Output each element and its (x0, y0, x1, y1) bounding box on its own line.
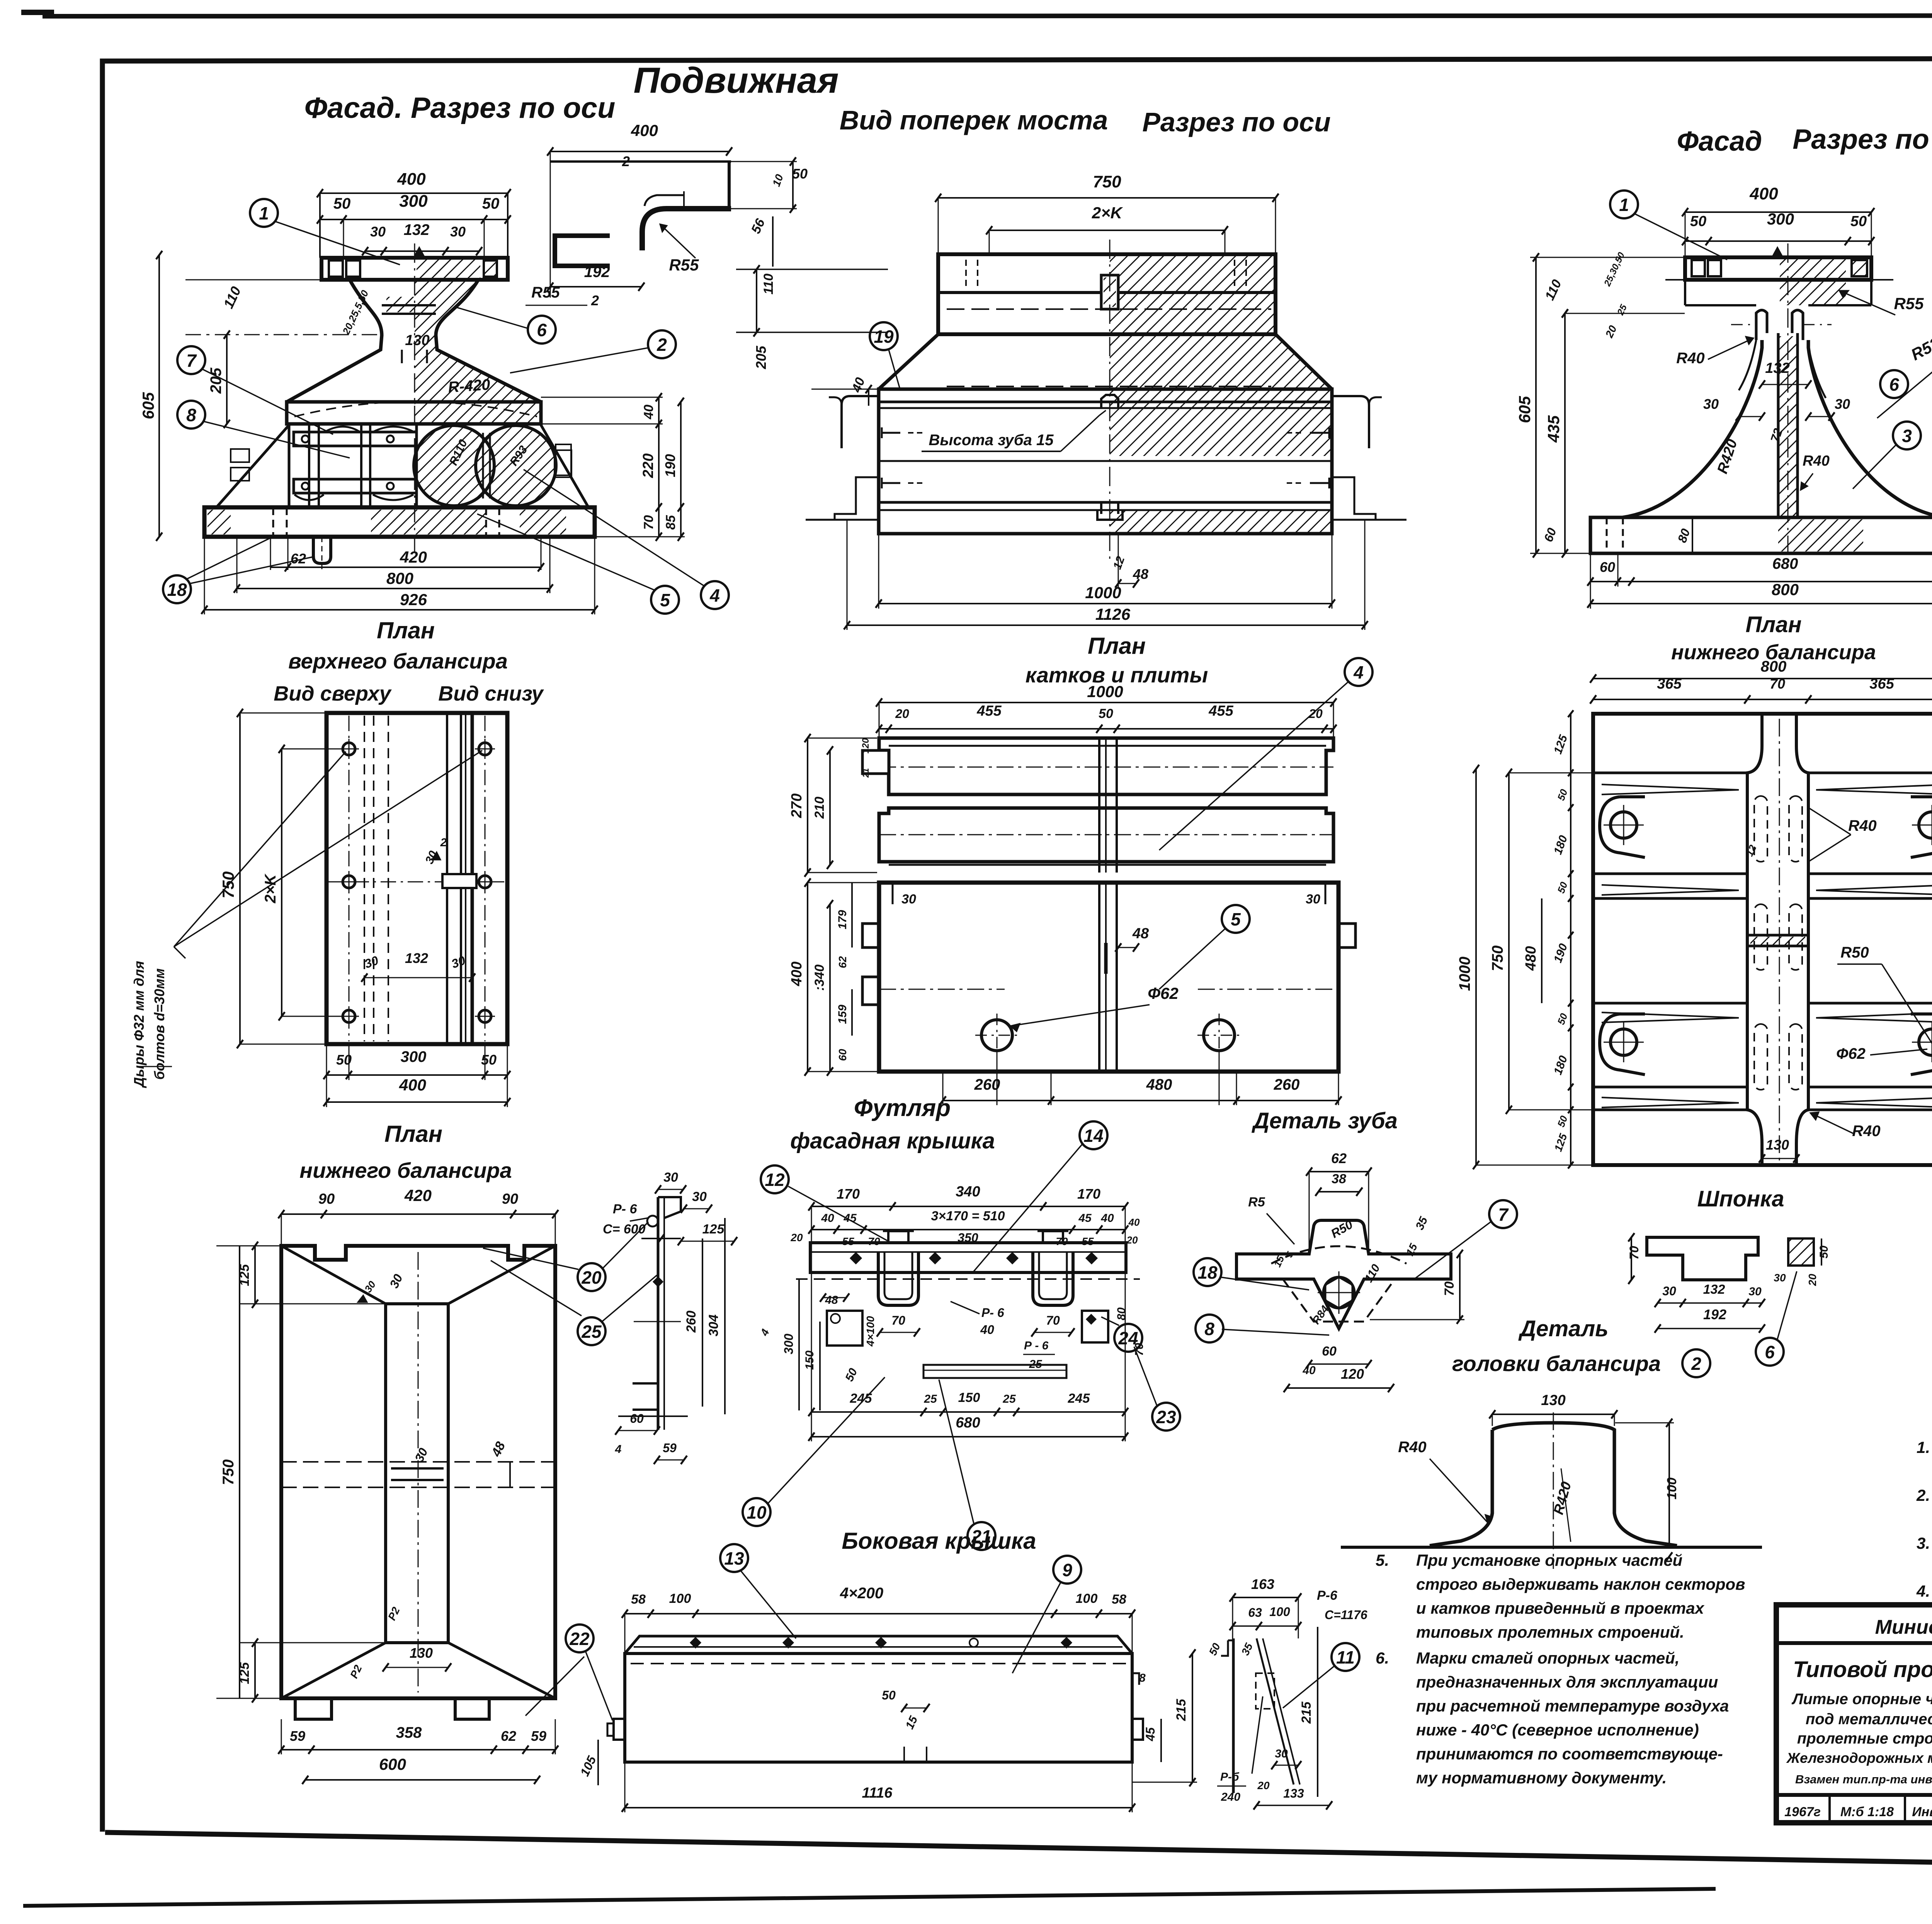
svg-text:59: 59 (663, 1441, 677, 1455)
svg-text:5.: 5. (1376, 1551, 1389, 1569)
svg-text:предназначенных для эксплуат: предназначенных для эксплуатации (1416, 1673, 1718, 1691)
svg-text:40: 40 (641, 405, 656, 420)
svg-text:159: 159 (836, 1005, 849, 1024)
svg-text:132: 132 (405, 950, 428, 966)
svg-text:750: 750 (1093, 172, 1121, 191)
svg-text:30: 30 (1774, 1272, 1786, 1284)
svg-text:680: 680 (1772, 555, 1798, 572)
svg-text:62: 62 (1331, 1150, 1347, 1166)
svg-text:3×170 = 510: 3×170 = 510 (931, 1209, 1005, 1223)
svg-text:215: 215 (1299, 1701, 1314, 1724)
svg-text:30: 30 (663, 1170, 678, 1185)
svg-text:30: 30 (1662, 1284, 1676, 1298)
svg-text:400: 400 (397, 170, 426, 189)
svg-text:60: 60 (1600, 559, 1615, 575)
svg-text:192: 192 (1703, 1306, 1726, 1322)
svg-text:365: 365 (1657, 676, 1682, 692)
svg-text:23: 23 (1156, 1407, 1176, 1427)
svg-text:План: План (1088, 633, 1146, 659)
svg-text:30: 30 (450, 224, 466, 240)
svg-text:50: 50 (792, 166, 808, 182)
svg-text:59: 59 (290, 1728, 305, 1744)
svg-text:R40: R40 (1803, 453, 1830, 469)
svg-text:50: 50 (1690, 213, 1706, 230)
svg-text:48: 48 (1132, 925, 1149, 942)
svg-text:60: 60 (1322, 1344, 1337, 1359)
svg-text:Разрез по оси: Разрез по оси (1142, 107, 1331, 137)
svg-text:1: 1 (259, 203, 269, 223)
svg-text:R40: R40 (1398, 1439, 1426, 1456)
svg-text:20: 20 (1806, 1274, 1818, 1286)
svg-text:6.: 6. (1376, 1649, 1389, 1667)
svg-text:50: 50 (333, 195, 351, 212)
svg-text:4×200: 4×200 (840, 1585, 883, 1602)
svg-text:Деталь: Деталь (1518, 1316, 1608, 1341)
svg-text:1126: 1126 (1095, 605, 1131, 623)
svg-text:50: 50 (882, 1688, 896, 1702)
svg-text:21: 21 (861, 768, 871, 778)
svg-text:С=1176: С=1176 (1325, 1608, 1367, 1622)
svg-text:100: 100 (1076, 1591, 1098, 1606)
svg-text:22: 22 (569, 1629, 590, 1649)
svg-text:455: 455 (1208, 703, 1233, 719)
svg-text:му нормативному документу.: му нормативному документу. (1416, 1769, 1667, 1787)
svg-text:20: 20 (581, 1267, 602, 1288)
svg-text:25: 25 (1002, 1393, 1016, 1405)
svg-text:50: 50 (482, 195, 500, 212)
svg-text:Р- 6: Р- 6 (613, 1202, 637, 1216)
svg-text:ниже - 40°С (северное исполне: ниже - 40°С (северное исполнение) (1416, 1721, 1699, 1739)
svg-text:40: 40 (1302, 1364, 1316, 1377)
svg-text:605: 605 (1515, 396, 1534, 423)
svg-text:48: 48 (825, 1294, 838, 1306)
svg-text:2×K: 2×K (1092, 204, 1123, 222)
svg-text:под металлические: под металлические (1806, 1711, 1932, 1728)
svg-text:100: 100 (1665, 1478, 1679, 1500)
svg-text:750: 750 (220, 1460, 237, 1485)
svg-text:125: 125 (237, 1662, 252, 1684)
svg-text:90: 90 (318, 1191, 335, 1207)
svg-text:План: План (384, 1121, 442, 1147)
svg-text:фасадная крышка: фасадная крышка (790, 1128, 995, 1153)
svg-text:30: 30 (1275, 1747, 1288, 1760)
svg-text:4.: 4. (1916, 1582, 1930, 1600)
svg-text:170: 170 (837, 1186, 860, 1202)
svg-text:680: 680 (956, 1415, 980, 1431)
svg-text:63: 63 (1248, 1606, 1262, 1619)
svg-text:215: 215 (1174, 1699, 1189, 1722)
svg-text:4: 4 (709, 585, 720, 606)
svg-text:R5: R5 (1248, 1195, 1265, 1210)
svg-text:800: 800 (386, 569, 413, 587)
svg-text:45: 45 (1143, 1727, 1157, 1742)
svg-text:верхнего балансира: верхнего балансира (288, 649, 508, 673)
svg-text:Железнодорожных мостов: Железнодорожных мостов (1786, 1750, 1932, 1766)
svg-text:и катков приведенный в прое: и катков приведенный в проектах (1416, 1599, 1705, 1617)
svg-text:50: 50 (481, 1052, 497, 1068)
svg-text:20: 20 (1257, 1779, 1270, 1791)
svg-text:358: 358 (396, 1724, 422, 1741)
svg-text:70: 70 (1442, 1281, 1457, 1296)
svg-text:Шпонка: Шпонка (1697, 1186, 1784, 1211)
svg-text:5: 5 (1231, 909, 1241, 929)
svg-text:132: 132 (1703, 1282, 1725, 1297)
svg-text:50: 50 (1850, 213, 1867, 230)
svg-text:Боковая крышка: Боковая крышка (842, 1528, 1036, 1554)
svg-text:100: 100 (669, 1591, 691, 1606)
svg-text:4×100: 4×100 (864, 1316, 876, 1347)
svg-text:85: 85 (663, 515, 678, 530)
svg-text:300: 300 (1767, 210, 1794, 228)
svg-text:Марки сталей опорных частей: Марки сталей опорных частей, (1416, 1649, 1680, 1667)
svg-text:1116: 1116 (862, 1785, 893, 1801)
svg-text:20: 20 (895, 707, 909, 721)
svg-text:головки балансира: головки балансира (1452, 1351, 1661, 1376)
svg-text:205: 205 (207, 367, 224, 394)
svg-text:Ф62: Ф62 (1148, 984, 1179, 1002)
svg-text:110: 110 (761, 274, 776, 294)
svg-text::340: :340 (812, 965, 827, 991)
svg-text:40: 40 (980, 1323, 994, 1337)
svg-text:Инв. N44818: Инв. N44818 (1912, 1805, 1932, 1819)
svg-text:45: 45 (843, 1212, 857, 1225)
svg-text:70: 70 (641, 515, 656, 530)
svg-text:1967г: 1967г (1784, 1805, 1821, 1819)
svg-text:40: 40 (821, 1212, 834, 1225)
svg-text:10: 10 (747, 1502, 767, 1523)
svg-text:8: 8 (1139, 1672, 1146, 1684)
svg-text:Литые опорные части: Литые опорные части (1791, 1691, 1932, 1708)
svg-text:Деталь зуба: Деталь зуба (1251, 1108, 1398, 1133)
svg-text:120: 120 (1341, 1366, 1364, 1382)
svg-text:3: 3 (1902, 426, 1912, 446)
svg-text:70: 70 (1046, 1313, 1060, 1327)
svg-text:При установке опорных часте: При установке опорных частей (1416, 1551, 1682, 1569)
svg-text:30: 30 (901, 892, 916, 907)
svg-text:210: 210 (812, 797, 827, 819)
svg-text:205: 205 (753, 345, 769, 369)
svg-text:2: 2 (440, 836, 447, 849)
svg-text:2.: 2. (1916, 1486, 1930, 1504)
svg-text:30: 30 (1835, 396, 1850, 412)
svg-text:926: 926 (400, 590, 427, 609)
svg-text:58: 58 (1112, 1592, 1126, 1607)
svg-text:6: 6 (1765, 1342, 1775, 1362)
svg-text:Вид сверху: Вид сверху (274, 682, 392, 705)
svg-text:70: 70 (1627, 1246, 1641, 1260)
svg-text:132: 132 (1765, 360, 1789, 376)
svg-text:4: 4 (615, 1443, 622, 1456)
svg-text:9: 9 (1062, 1560, 1072, 1580)
svg-text:59: 59 (531, 1728, 546, 1744)
svg-text:120: 120 (861, 738, 871, 754)
svg-text:Фасад: Фасад (1677, 126, 1762, 157)
svg-text:Высота зуба 15: Высота зуба 15 (929, 432, 1054, 449)
svg-text:18: 18 (1197, 1262, 1218, 1283)
svg-text:163: 163 (1251, 1576, 1274, 1592)
svg-text:38: 38 (1332, 1172, 1346, 1186)
svg-text:58: 58 (631, 1592, 646, 1607)
svg-text:480: 480 (1146, 1076, 1172, 1093)
svg-text:50: 50 (1818, 1245, 1830, 1259)
svg-text:Типовой проект: Типовой проект (1793, 1657, 1932, 1682)
svg-text:болтов d=30мм: болтов d=30мм (151, 968, 167, 1080)
svg-text:240: 240 (1221, 1791, 1240, 1803)
svg-text:300: 300 (401, 1048, 427, 1065)
svg-text:R55: R55 (669, 256, 699, 274)
svg-text:R40: R40 (1848, 817, 1876, 834)
svg-text:133: 133 (1283, 1786, 1304, 1800)
svg-text:20: 20 (790, 1232, 803, 1244)
svg-text:2: 2 (656, 335, 667, 355)
svg-text:R40: R40 (1852, 1123, 1880, 1140)
svg-text:Ф62: Ф62 (1836, 1045, 1866, 1062)
svg-text:20: 20 (1308, 707, 1323, 721)
svg-text:170: 170 (1077, 1186, 1100, 1202)
svg-text:пролетные строения: пролетные строения (1797, 1730, 1932, 1747)
svg-text:400: 400 (631, 121, 658, 139)
svg-text:2: 2 (591, 293, 599, 308)
svg-text:132: 132 (404, 221, 430, 238)
svg-text:2: 2 (1691, 1354, 1701, 1374)
svg-text:14: 14 (1083, 1126, 1103, 1146)
svg-text:800: 800 (1761, 658, 1787, 675)
svg-text:R55: R55 (1894, 294, 1924, 313)
svg-text:Р - 6: Р - 6 (1024, 1339, 1049, 1352)
svg-text:340: 340 (956, 1184, 980, 1200)
svg-text:365: 365 (1869, 676, 1894, 692)
svg-text:8: 8 (1204, 1319, 1214, 1339)
svg-text:6: 6 (537, 320, 547, 340)
svg-text:R40: R40 (1676, 350, 1704, 367)
svg-text:62: 62 (837, 956, 849, 968)
svg-text:60: 60 (630, 1412, 644, 1426)
svg-text:30: 30 (1306, 892, 1320, 907)
svg-text:Министерство транспортного ст: Министерство транспортного строительства… (1875, 1616, 1932, 1638)
svg-text:45: 45 (1078, 1212, 1092, 1225)
svg-text:130: 130 (1766, 1137, 1789, 1153)
svg-text:304: 304 (706, 1315, 721, 1337)
svg-text:40: 40 (1128, 1216, 1140, 1228)
svg-text:70: 70 (891, 1313, 905, 1327)
svg-text:150: 150 (958, 1390, 980, 1405)
svg-text:750: 750 (1489, 946, 1506, 971)
svg-text:605: 605 (139, 392, 157, 419)
svg-text:400: 400 (789, 961, 805, 986)
svg-text:18: 18 (167, 580, 187, 600)
svg-text:190: 190 (662, 454, 678, 477)
svg-text:800: 800 (1772, 580, 1799, 599)
svg-text:Футляр: Футляр (854, 1095, 951, 1121)
svg-text:типовых пролетных строений.: типовых пролетных строений. (1416, 1623, 1684, 1641)
svg-text:М:б 1:18: М:б 1:18 (1840, 1805, 1894, 1819)
svg-text:179: 179 (836, 910, 849, 929)
svg-text:30: 30 (692, 1189, 707, 1204)
svg-text:220: 220 (640, 453, 656, 478)
svg-text:Р- 6: Р- 6 (981, 1306, 1004, 1320)
svg-text:4: 4 (1353, 662, 1364, 682)
svg-text:Вид снизу: Вид снизу (438, 682, 544, 705)
svg-text:300: 300 (782, 1334, 796, 1354)
svg-text:80: 80 (1115, 1307, 1128, 1320)
svg-text:нижнего балансира: нижнего балансира (299, 1158, 512, 1182)
svg-text:480: 480 (1523, 946, 1539, 971)
svg-text:25: 25 (923, 1393, 937, 1405)
svg-text:435: 435 (1544, 415, 1563, 443)
svg-text:455: 455 (976, 703, 1002, 719)
svg-text:24: 24 (1118, 1328, 1138, 1348)
svg-text:260: 260 (1274, 1076, 1300, 1093)
svg-text:270: 270 (789, 793, 805, 818)
svg-text:30: 30 (370, 224, 386, 240)
svg-text:420: 420 (400, 548, 427, 566)
svg-text:30: 30 (1703, 396, 1719, 412)
svg-text:Фасад. Разрез по оси: Фасад. Разрез по оси (304, 92, 616, 124)
svg-text:3.: 3. (1917, 1534, 1930, 1552)
svg-text:Разрез по оси: Разрез по оси (1793, 124, 1932, 155)
svg-text:20: 20 (1126, 1234, 1138, 1246)
svg-text:260: 260 (684, 1311, 699, 1333)
svg-text:5: 5 (660, 590, 670, 610)
svg-text:13: 13 (724, 1548, 744, 1568)
svg-text:11: 11 (1336, 1647, 1355, 1667)
svg-text:1000: 1000 (1087, 682, 1123, 701)
svg-text:Взамен тип.пр-та инв.№7250: Взамен тип.пр-та инв.№7250 (1795, 1773, 1932, 1786)
svg-text:7: 7 (186, 350, 197, 371)
svg-text:при расчетной температуре в: при расчетной температуре воздуха (1416, 1697, 1729, 1715)
svg-text:400: 400 (1749, 184, 1778, 203)
svg-text:1000: 1000 (1456, 957, 1473, 991)
svg-text:12: 12 (765, 1170, 785, 1190)
svg-text:50: 50 (1099, 706, 1113, 721)
svg-text:Р-6: Р-6 (1317, 1588, 1338, 1603)
svg-text:строго выдерживать наклон с: строго выдерживать наклон секторов (1416, 1575, 1745, 1593)
svg-text:Р-б: Р-б (1220, 1771, 1240, 1783)
svg-text:Дыры Ф32 мм для: Дыры Ф32 мм для (131, 961, 147, 1089)
svg-text:25: 25 (581, 1322, 602, 1342)
svg-text:19: 19 (874, 327, 894, 347)
svg-text:План: План (377, 618, 435, 643)
svg-text:1: 1 (1619, 195, 1629, 215)
svg-text:130: 130 (410, 1645, 433, 1661)
svg-text:60: 60 (837, 1049, 849, 1061)
svg-text:400: 400 (399, 1076, 426, 1094)
svg-text:600: 600 (379, 1755, 406, 1773)
svg-text:Подвижная: Подвижная (634, 60, 839, 100)
svg-text:R50: R50 (1840, 944, 1869, 961)
svg-text:8: 8 (186, 405, 196, 425)
svg-text:90: 90 (502, 1191, 518, 1207)
svg-text:7: 7 (1498, 1204, 1509, 1225)
svg-text:245: 245 (1068, 1391, 1090, 1406)
svg-text:30: 30 (1748, 1285, 1762, 1298)
svg-text:420: 420 (404, 1186, 432, 1204)
svg-text:40: 40 (1100, 1212, 1114, 1225)
svg-text:1.: 1. (1917, 1438, 1930, 1456)
svg-text:48: 48 (1133, 566, 1148, 582)
svg-text:125: 125 (702, 1222, 725, 1237)
svg-text:Вид поперек моста: Вид поперек моста (840, 105, 1108, 135)
svg-text:70: 70 (1770, 676, 1785, 692)
svg-text:План: План (1745, 612, 1801, 637)
svg-text:300: 300 (399, 192, 428, 211)
svg-text:130: 130 (1541, 1392, 1565, 1409)
svg-text:С= 600: С= 600 (603, 1222, 646, 1237)
svg-text:150: 150 (803, 1351, 816, 1370)
svg-text:принимаются по соответствующ: принимаются по соответствующе- (1416, 1745, 1723, 1763)
svg-text:62: 62 (501, 1728, 516, 1744)
svg-text:192: 192 (584, 264, 610, 281)
svg-text:130: 130 (405, 332, 429, 349)
svg-text:100: 100 (1269, 1605, 1290, 1619)
svg-text:R-420: R-420 (447, 376, 491, 396)
svg-text:260: 260 (974, 1076, 1000, 1093)
svg-text:6: 6 (1889, 374, 1899, 395)
